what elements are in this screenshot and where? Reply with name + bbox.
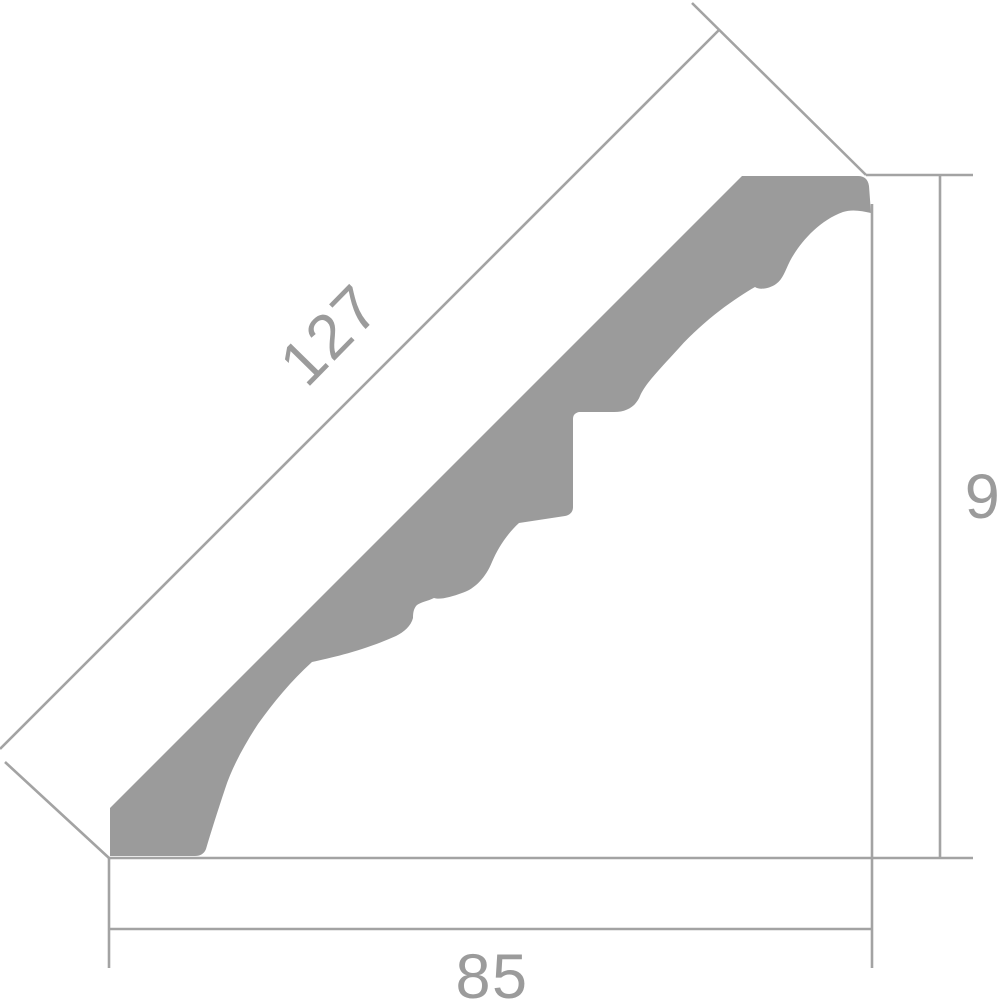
face-extension-line-top — [692, 3, 866, 175]
molding-profile-shape — [110, 176, 871, 856]
face-extension-line-bottom — [5, 762, 109, 858]
drawing-canvas: 127 9 85 — [0, 0, 1000, 1000]
dimension-height-group — [866, 175, 973, 858]
width-dimension-label: 85 — [455, 942, 528, 1000]
height-dimension-label: 9 — [965, 462, 1000, 532]
width-dimension-label-group: 85 — [455, 942, 528, 1000]
dimension-face-group — [0, 3, 866, 858]
face-dimension-label-group: 127 — [267, 272, 394, 399]
face-dimension-label: 127 — [267, 272, 394, 399]
dimension-width-group — [109, 204, 973, 968]
molding-dimension-drawing: 127 9 85 — [0, 0, 1000, 1000]
height-dimension-label-group: 9 — [965, 462, 1000, 532]
